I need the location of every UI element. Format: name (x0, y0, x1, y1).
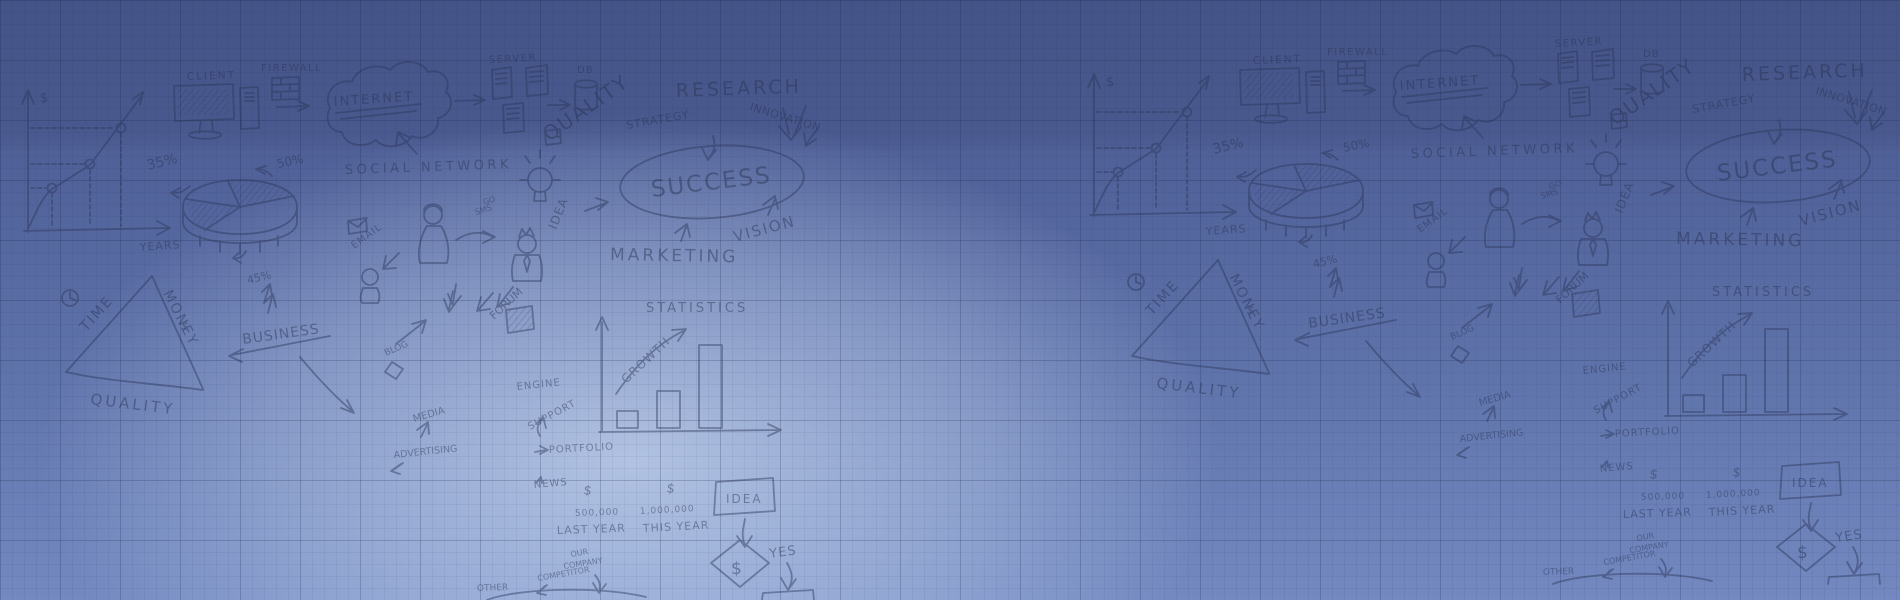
blog-label: BLOG (383, 339, 410, 358)
dollar-axis-label: $ (40, 91, 48, 106)
crowned-man-body (512, 228, 542, 281)
engine-label: ENGINE (516, 377, 561, 393)
idea-diagonal-label: IDEA (546, 196, 571, 231)
sms-label: SMS (474, 203, 493, 217)
pie-chart-sketch: 50% 45% (183, 152, 305, 303)
advertising-arrow (391, 463, 403, 474)
doodle-layer: $ YEARS 35% CLIENT FIREWALL INTERNET (0, 0, 1900, 600)
vision-label: VISION (731, 212, 797, 246)
portfolio-arrow (535, 446, 548, 454)
strategy-label: STRATEGY (625, 108, 690, 132)
business-sketch: BUSINESS BLOG (229, 294, 426, 413)
line-chart-sketch: $ YEARS 35% (22, 90, 190, 254)
firewall-label: FIREWALL (261, 63, 322, 74)
marketing-label: MARKETING (610, 245, 739, 267)
last-year-dollar: $ (582, 483, 592, 499)
pct35-label: 35% (145, 151, 179, 174)
cloud-arrow (396, 132, 417, 154)
vision-sketch: VISION (731, 196, 797, 246)
social-network-sketch: SOCIAL NETWORK (345, 157, 513, 178)
firewall-sketch: FIREWALL (261, 63, 322, 111)
idea-flowchart-sketch: IDEA $ YES (711, 478, 814, 600)
research-sketch: RESEARCH (675, 76, 806, 140)
years-axis-label: YEARS (138, 238, 181, 254)
brick-wall (272, 77, 309, 111)
crowned-man-head (518, 235, 536, 253)
support-label: SUPPORT (526, 398, 578, 433)
bulb-rays (520, 150, 560, 201)
small-person-body (361, 288, 380, 303)
this-year-dollar: $ (665, 481, 675, 497)
growth-curve (29, 92, 143, 227)
yes-elbow-arrow (781, 563, 796, 590)
marketing-arrow (675, 224, 690, 241)
bottom-pie-arc (487, 590, 646, 600)
bar (699, 345, 722, 428)
portfolio-label: PORTFOLIO (549, 442, 615, 456)
internet-label: INTERNET (333, 89, 414, 110)
partial-result-box (762, 590, 814, 600)
yes-label: YES (767, 543, 797, 562)
innovation-label: INNOVATION (748, 100, 822, 134)
business-label: BUSINESS (241, 321, 320, 348)
services-list-sketch: ENGINE SUPPORT PORTFOLIO NEWS (516, 377, 614, 491)
idea-arrow (585, 198, 608, 211)
pct45-label: 45% (246, 268, 273, 287)
small-person-head (362, 269, 378, 285)
bulb-icon (528, 168, 552, 192)
advertising-label: ADVERTISING (393, 443, 458, 461)
pct50-arrow (256, 166, 272, 176)
client-computer-sketch: CLIENT (174, 69, 259, 138)
media-arrow (417, 422, 429, 437)
last-year-label: LAST YEAR (557, 522, 626, 537)
pct50-label: 50% (276, 152, 305, 171)
media-advertising-sketch: MEDIA ADVERTISING (391, 405, 458, 474)
social-network-label: SOCIAL NETWORK (345, 157, 513, 178)
marketing-sketch: MARKETING (610, 224, 739, 267)
strategy-arrow (702, 136, 716, 160)
server-boxes (492, 65, 548, 133)
time-money-quality-triangle-sketch: TIME MONEY $ QUALITY (62, 276, 203, 418)
research-label: RESEARCH (675, 76, 802, 102)
woman-body (419, 204, 449, 263)
time-label: TIME (76, 293, 116, 335)
db-label: DB (577, 65, 594, 76)
year-comparison-sketch: $ $ 500,000 LAST YEAR 1,000,000 THIS YEA… (557, 481, 710, 537)
doodle-tile-repeat (1088, 36, 1888, 584)
pie-curl-arrow (233, 251, 246, 263)
stats-bars (617, 345, 722, 428)
client-label: CLIENT (187, 69, 237, 83)
bar (617, 411, 638, 428)
diamond-dollar-label: $ (731, 559, 742, 579)
statistics-label: STATISTICS (646, 301, 748, 316)
woman-head (424, 206, 442, 224)
idea-box-label: IDEA (726, 492, 763, 506)
screen-hatch (178, 89, 228, 115)
other-label: OTHER (477, 583, 509, 594)
innovation-sketch: INNOVATION (748, 100, 822, 146)
last-year-amount: 500,000 (575, 507, 620, 519)
clock-hands (70, 292, 75, 300)
our-label: OUR (570, 547, 589, 559)
email-sketch: EMAIL (348, 218, 384, 251)
doodle-tile: $ YEARS 35% CLIENT FIREWALL INTERNET (22, 52, 822, 600)
internet-cloud-sketch: INTERNET (328, 62, 451, 154)
quality-base-label: QUALITY (90, 390, 177, 418)
this-year-amount: 1,000,000 (640, 504, 695, 517)
success-label: SUCCESS (650, 162, 774, 203)
banner-background: $ YEARS 35% CLIENT FIREWALL INTERNET (0, 0, 1900, 600)
bar (657, 391, 680, 428)
server-label: SERVER (489, 52, 538, 66)
business-arrows (229, 294, 354, 413)
media-label: MEDIA (412, 405, 446, 425)
statistics-chart-sketch: STATISTICS GROWTH (596, 301, 781, 436)
forum-sketch: FORUM (444, 285, 534, 333)
this-year-label: THIS YEAR (641, 519, 709, 536)
company-pie-sketch: OUR COMPANY COMPETITOR OTHER (477, 547, 646, 600)
